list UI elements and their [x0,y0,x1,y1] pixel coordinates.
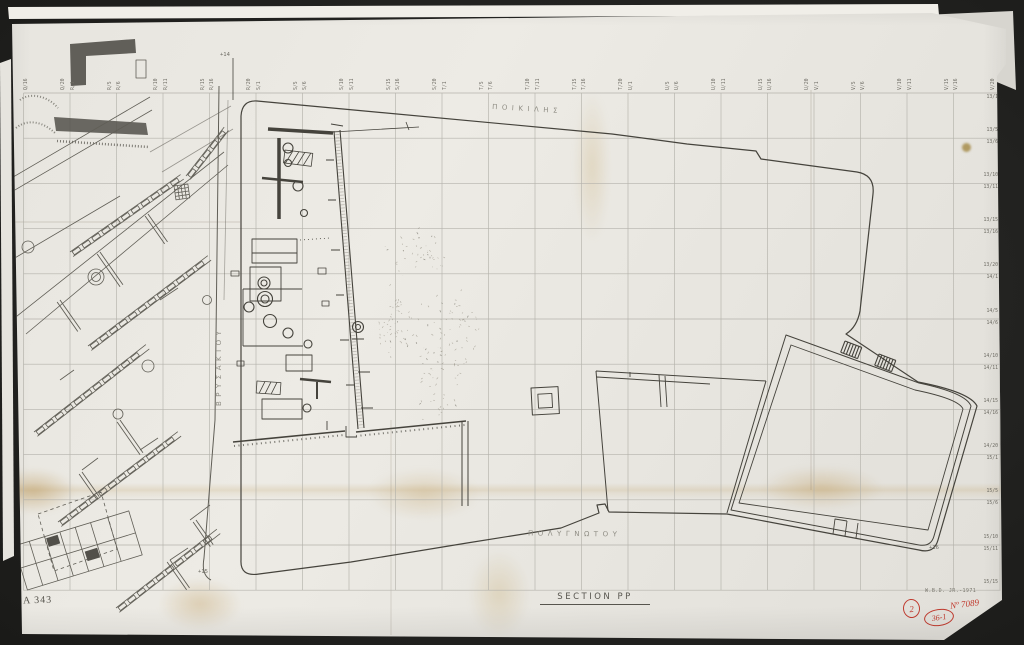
grid-column-label: R/6 [118,56,125,90]
grid-row-label: 13/10 [958,174,998,179]
grid-column-label: S/6 [304,56,311,90]
grid-column-label: R/5 [109,56,116,90]
grid-column-label: V/15 [946,56,953,90]
grid-column-label: R/20 [248,56,255,90]
grid-row-label: 14/10 [958,355,998,360]
grid-row-label: 13/11 [958,186,998,191]
grid-column-label: T/6 [490,56,497,90]
grid-column-label: S/10 [341,56,348,90]
survey-grid-lines [24,93,1001,591]
grid-row-label: 13/15 [958,219,998,224]
grid-column-label: V/16 [955,56,962,90]
section-title: SECTION PP [540,592,650,605]
old-plan-overlay [8,39,233,612]
grid-column-label: V/10 [899,56,906,90]
street-name-west: ΒΡΥΣΑΚΙΟΥ [215,294,223,406]
street-name-south: ΠΟΛΥΓΝΩΤΟΥ [528,530,621,539]
grid-row-label: 13/20 [958,264,998,269]
grid-row-label: 14/16 [958,412,998,417]
stair-hatch [841,341,896,372]
grid-column-label: V/20 [992,56,999,90]
grid-column-label: U/5 [667,56,674,90]
benchmark-16: +16 [929,545,939,551]
grid-column-label: T/20 [620,56,627,90]
benchmark-15: +15 [198,569,208,575]
pencil-sketch-cluster [379,228,479,420]
credit-note: W.B.D. JR.-1971 [925,588,976,594]
grid-row-label: 15/6 [958,502,998,507]
central-excavation [231,122,419,437]
grid-row-label: 13/5 [958,129,998,134]
grid-column-label: S/16 [397,56,404,90]
grid-column-label: S/5 [295,56,302,90]
grid-row-label: 13/16 [958,231,998,236]
grid-column-label: S/11 [351,56,358,90]
grid-row-label: 13/6 [958,141,998,146]
grid-row-label: 15/1 [958,457,998,462]
grid-column-label: T/15 [574,56,581,90]
grid-column-label: T/1 [444,56,451,90]
grid-column-label: U/11 [723,56,730,90]
grid-column-label: Q/20 [62,56,69,90]
grid-row-label: 13/1 [958,96,998,101]
photo-background: Q/16Q/20R/1R/5R/6R/10R/11R/15R/16R/20S/1… [0,0,1024,645]
section-outline [233,58,977,574]
grid-row-label: 15/15 [958,581,998,586]
grid-column-label: U/10 [713,56,720,90]
grid-column-label: U/1 [630,56,637,90]
grid-column-label: T/5 [481,56,488,90]
grid-column-label: T/16 [583,56,590,90]
grid-column-label: R/10 [155,56,162,90]
grid-column-label: U/20 [806,56,813,90]
grid-column-label: S/1 [258,56,265,90]
grid-row-label: 14/15 [958,400,998,405]
grid-row-label: 14/11 [958,367,998,372]
retaining-walls [233,421,468,506]
grid-column-label: R/1 [72,56,79,90]
grid-row-label: 14/1 [958,276,998,281]
grid-column-label: V/5 [853,56,860,90]
grid-row-label: 15/5 [958,490,998,495]
grid-column-label: S/15 [388,56,395,90]
sheet-number: A 343 [23,594,53,606]
plan-drawing [0,0,1024,645]
grid-column-label: T/11 [537,56,544,90]
grid-column-label: R/11 [165,56,172,90]
grid-column-label: V/6 [862,56,869,90]
building-quad [731,335,971,545]
grid-column-label: U/16 [769,56,776,90]
grid-row-label: 15/10 [958,536,998,541]
grid-column-label: S/20 [434,56,441,90]
grid-column-label: V/1 [816,56,823,90]
grid-column-label: U/6 [676,56,683,90]
grid-column-label: U/15 [760,56,767,90]
grid-row-label: 14/5 [958,310,998,315]
grid-column-label: R/16 [211,56,218,90]
building-trapezoid [596,371,766,513]
grid-row-label: 14/20 [958,445,998,450]
grid-column-label: R/15 [202,56,209,90]
grid-column-label: T/10 [527,56,534,90]
grid-row-label: 15/11 [958,548,998,553]
benchmark-14: +14 [220,52,230,58]
drawing-sheet: Q/16Q/20R/1R/5R/6R/10R/11R/15R/16R/20S/1… [0,0,1024,645]
grid-row-label: 14/6 [958,322,998,327]
grid-column-label: Q/16 [25,56,32,90]
grid-column-label: V/11 [909,56,916,90]
